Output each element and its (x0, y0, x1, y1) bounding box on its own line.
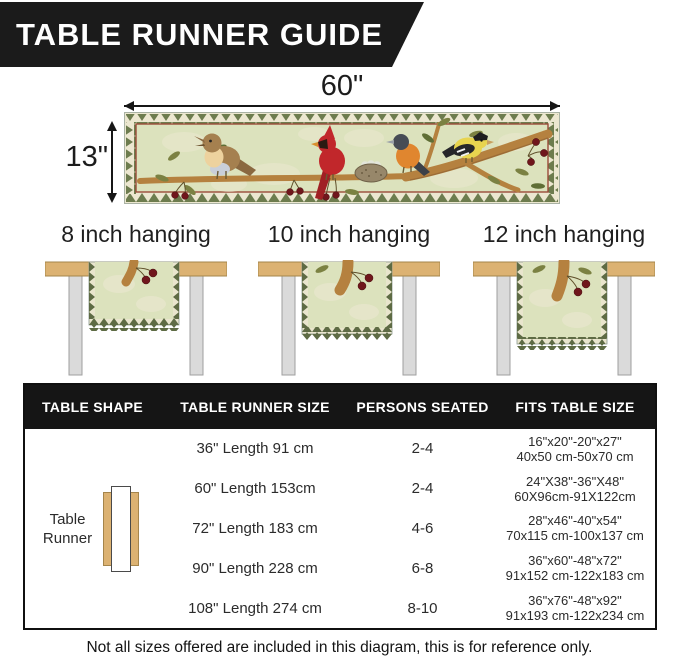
size-table: TABLE SHAPE TABLE RUNNER SIZE PERSONS SE… (23, 383, 657, 630)
shape-label-line2: Runner (43, 529, 92, 548)
width-dimension-label: 60" (124, 70, 560, 103)
runner-size-value: 108" Length 274 cm (160, 600, 350, 617)
runner-size-value: 60" Length 153cm (160, 480, 350, 497)
persons-value: 6-8 (350, 560, 495, 577)
hanging-runner (302, 262, 392, 340)
page-title: TABLE RUNNER GUIDE (0, 17, 383, 53)
runner-size-value: 36" Length 91 cm (160, 440, 350, 457)
header-runner-size: TABLE RUNNER SIZE (160, 399, 350, 415)
table-leg (497, 274, 510, 375)
table-leg (69, 274, 82, 375)
hanging-option-8-label: 8 inch hanging (45, 221, 227, 248)
fits-cm: 91x193 cm-122x234 cm (495, 608, 655, 623)
fits-value: 28"x46"-40"x54" 70x115 cm-100x137 cm (495, 513, 655, 543)
fits-inches: 36"x76"-48"x92" (495, 593, 655, 608)
fits-value: 36"x76"-48"x92" 91x193 cm-122x234 cm (495, 593, 655, 623)
disclaimer-note: Not all sizes offered are included in th… (0, 639, 679, 657)
width-arrow-icon (124, 105, 560, 107)
runner-size-value: 90" Length 228 cm (160, 560, 350, 577)
hanging-runner (517, 262, 607, 350)
persons-value: 2-4 (350, 440, 495, 457)
header-table-shape: TABLE SHAPE (25, 399, 160, 415)
table-shape-cell: Table Runner (25, 429, 160, 628)
fits-cm: 91x152 cm-122x183 cm (495, 568, 655, 583)
persons-value: 2-4 (350, 480, 495, 497)
fits-value: 24"X38"-36"X48" 60X96cm-91X122cm (495, 474, 655, 504)
table-figure-10-inch (258, 260, 440, 378)
fits-inches: 24"X38"-36"X48" (495, 474, 655, 489)
table-runner-guide-infographic: TABLE RUNNER GUIDE 60" 13" (0, 0, 679, 662)
header-persons-seated: PERSONS SEATED (350, 399, 495, 415)
runner-rect (111, 486, 131, 572)
table-leg (618, 274, 631, 375)
fits-inches: 16"x20"-20"x27" (495, 434, 655, 449)
persons-value: 4-6 (350, 520, 495, 537)
runner-size-value: 72" Length 183 cm (160, 520, 350, 537)
banner: TABLE RUNNER GUIDE (0, 2, 424, 67)
table-leg (190, 274, 203, 375)
fits-value: 16"x20"-20"x27" 40x50 cm-50x70 cm (495, 434, 655, 464)
fits-inches: 36"x60"-48"x72" (495, 553, 655, 568)
hanging-runner (89, 262, 179, 331)
height-arrow-icon (111, 123, 113, 201)
shape-label: Table Runner (43, 510, 92, 548)
fits-value: 36"x60"-48"x72" 91x152 cm-122x183 cm (495, 553, 655, 583)
size-table-header: TABLE SHAPE TABLE RUNNER SIZE PERSONS SE… (25, 385, 655, 429)
height-dimension-label: 13" (58, 141, 108, 174)
hanging-option-12-label: 12 inch hanging (473, 221, 655, 248)
persons-value: 8-10 (350, 600, 495, 617)
fits-cm: 70x115 cm-100x137 cm (495, 528, 655, 543)
header-fits-table-size: FITS TABLE SIZE (495, 399, 655, 415)
fits-cm: 60X96cm-91X122cm (495, 489, 655, 504)
table-figure-8-inch (45, 260, 227, 378)
table-leg (282, 274, 295, 375)
size-table-body: Table Runner 36" Length 91 cm 2-4 16"x20… (25, 429, 655, 628)
table-figure-12-inch (473, 260, 655, 378)
hanging-option-10-label: 10 inch hanging (258, 221, 440, 248)
table-runner-image (124, 112, 560, 204)
runner-on-table-icon (102, 486, 142, 572)
fits-cm: 40x50 cm-50x70 cm (495, 449, 655, 464)
table-leg (403, 274, 416, 375)
shape-label-line1: Table (43, 510, 92, 529)
fits-inches: 28"x46"-40"x54" (495, 513, 655, 528)
